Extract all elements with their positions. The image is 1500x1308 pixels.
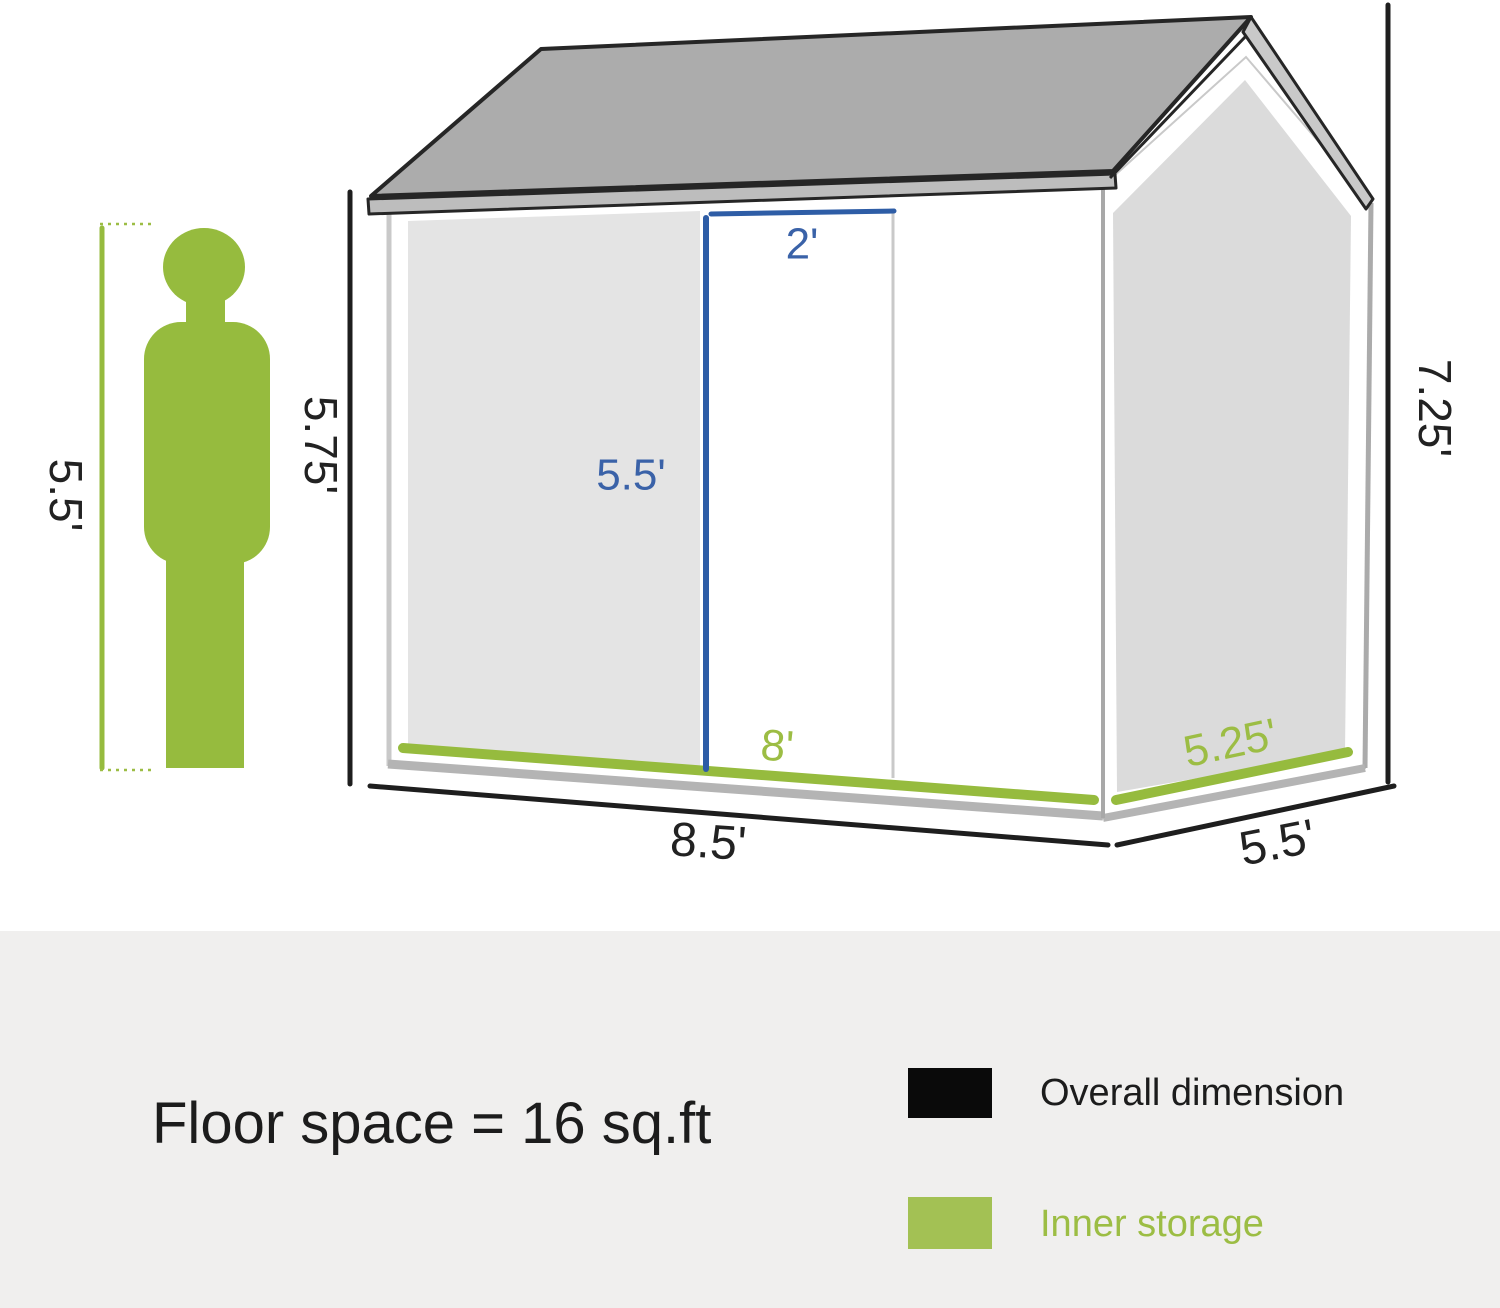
person-height-label: 5.5'	[40, 459, 92, 532]
legend-label-inner: Inner storage	[1040, 1203, 1264, 1245]
shed-dimension-infographic: 5.5' 8	[0, 0, 1500, 1308]
person-torso	[144, 322, 270, 564]
person-head	[163, 228, 245, 306]
legend-swatch-overall	[908, 1068, 992, 1118]
floor-space-text: Floor space = 16 sq.ft	[152, 1091, 711, 1156]
door-width-label: 2'	[786, 220, 819, 269]
person-silhouette	[144, 228, 270, 768]
shed-side-face	[1103, 57, 1371, 818]
front-width-label: 8.5'	[668, 813, 747, 871]
shed-front-face	[387, 186, 1103, 818]
inner-front-width-label: 8'	[759, 721, 795, 772]
side-wall-panel	[1113, 80, 1351, 792]
legend-label-overall: Overall dimension	[1040, 1072, 1344, 1114]
side-depth-label: 5.5'	[1235, 810, 1320, 877]
legend-swatch-inner	[908, 1197, 992, 1249]
door-width-line	[711, 211, 894, 214]
front-height-label: 5.75'	[295, 396, 347, 494]
gable-height-label: 7.25'	[1409, 359, 1461, 457]
shed-diagram-canvas: 5.5' 8	[0, 0, 1500, 1308]
person-legs	[166, 540, 244, 768]
door-height-label: 5.5'	[596, 451, 666, 500]
person-height-dimension: 5.5'	[40, 224, 155, 770]
